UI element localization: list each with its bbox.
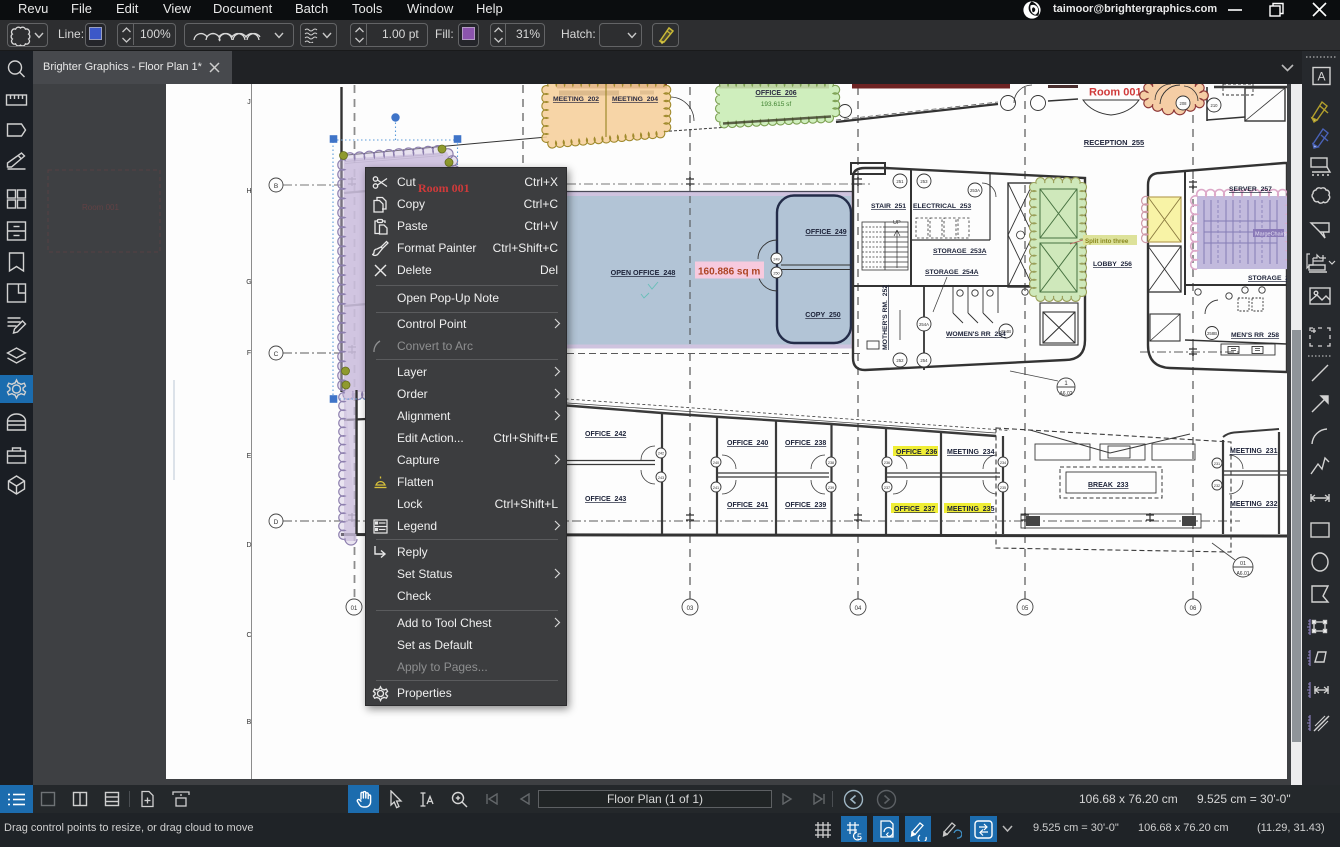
svg-text:LOBBY 256: LOBBY 256 [1093,261,1132,268]
svg-text:239: 239 [828,486,834,490]
svg-text:237: 237 [884,486,890,490]
svg-text:B: B [274,183,278,190]
svg-text:249: 249 [773,257,779,261]
svg-text:232: 232 [1214,484,1220,488]
svg-text:OFFICE 249: OFFICE 249 [805,229,846,236]
svg-text:D: D [274,519,279,526]
svg-text:A6.01: A6.01 [1236,571,1249,577]
svg-text:C: C [246,632,251,639]
svg-text:254A: 254A [919,322,929,327]
svg-text:OFFICE 238: OFFICE 238 [785,440,826,447]
svg-text:258B: 258B [1207,331,1217,336]
svg-text:MOTHER'S RM. 252: MOTHER'S RM. 252 [882,285,889,350]
svg-text:254: 254 [920,358,928,363]
svg-text:Room 001: Room 001 [82,203,119,212]
svg-text:STORAGE 254A: STORAGE 254A [925,269,979,276]
svg-text:01: 01 [1240,561,1246,567]
svg-text:208: 208 [1180,101,1188,106]
svg-text:OFFICE 242: OFFICE 242 [585,431,626,438]
svg-text:D: D [246,542,251,549]
svg-text:STORAGE 2: STORAGE 2 [1248,275,1287,282]
svg-text:MEETING 231: MEETING 231 [1230,448,1278,455]
svg-text:B: B [247,719,252,726]
svg-text:OPEN OFFICE 248: OPEN OFFICE 248 [611,268,676,277]
svg-text:OFFICE 240: OFFICE 240 [727,440,768,447]
svg-text:SERVER 257: SERVER 257 [1229,186,1272,193]
svg-text:235: 235 [1000,486,1006,490]
svg-text:STAIR 251: STAIR 251 [871,203,906,210]
svg-text:A: A [1317,70,1325,84]
svg-text:MEETING 204: MEETING 204 [612,96,658,103]
svg-text:Split into three: Split into three [1085,238,1129,245]
svg-text:160.886 sq m: 160.886 sq m [698,267,760,278]
svg-text:UP: UP [893,220,901,226]
svg-text:04: 04 [855,606,862,612]
svg-text:H: H [246,188,251,195]
svg-text:05: 05 [1022,606,1029,612]
svg-text:MargeChairs: MargeChairs [1255,232,1287,238]
svg-text:OFFICE 241: OFFICE 241 [727,502,768,509]
svg-text:MEETING 234: MEETING 234 [947,449,995,456]
svg-text:238: 238 [828,461,834,465]
svg-text:MEN'S RR 258: MEN'S RR 258 [1231,332,1279,339]
svg-text:251: 251 [896,179,904,184]
svg-text:236: 236 [884,461,890,465]
svg-text:G: G [246,279,251,286]
svg-text:WOMEN'S RR 254: WOMEN'S RR 254 [946,331,1006,338]
svg-text:OFFICE 206: OFFICE 206 [755,90,796,97]
svg-text:253A: 253A [970,188,980,193]
svg-text:01: 01 [351,606,358,612]
svg-text:Room 001: Room 001 [1089,87,1142,99]
svg-text:OFFICE 239: OFFICE 239 [785,502,826,509]
svg-text:STORAGE 253A: STORAGE 253A [933,248,987,255]
svg-text:F: F [247,350,251,357]
svg-text:242: 242 [658,452,664,456]
svg-text:BREAK 233: BREAK 233 [1088,482,1129,489]
svg-text:COPY 250: COPY 250 [805,312,841,319]
svg-text:E: E [247,453,252,460]
svg-text:250: 250 [773,271,779,275]
svg-text:ELECTRICAL 253: ELECTRICAL 253 [913,203,971,210]
svg-text:03: 03 [687,606,694,612]
svg-text:C: C [274,351,279,358]
svg-text:240: 240 [713,461,719,465]
svg-text:5: 5 [857,832,862,841]
svg-text:MEETING 202: MEETING 202 [553,96,599,103]
svg-text:OFFICE 237: OFFICE 237 [894,506,935,513]
svg-text:06: 06 [1190,606,1197,612]
svg-text:252: 252 [896,358,904,363]
svg-text:193.615 sf: 193.615 sf [761,101,792,108]
svg-text:231: 231 [1214,462,1220,466]
svg-text:234: 234 [1000,461,1006,465]
svg-text:253: 253 [920,179,928,184]
svg-text:243: 243 [658,476,664,480]
svg-text:MEETING 235: MEETING 235 [947,506,995,513]
svg-text:OFFICE 243: OFFICE 243 [585,496,626,503]
svg-text:A6.02: A6.02 [1059,391,1072,397]
svg-text:210: 210 [1211,103,1219,108]
svg-text:OFFICE 236: OFFICE 236 [896,449,937,456]
svg-text:RECEPTION 255: RECEPTION 255 [1084,138,1144,147]
svg-text:MEETING 232: MEETING 232 [1230,501,1278,508]
svg-text:1: 1 [1064,381,1068,387]
svg-text:241: 241 [713,486,719,490]
svg-text:J: J [247,99,251,106]
